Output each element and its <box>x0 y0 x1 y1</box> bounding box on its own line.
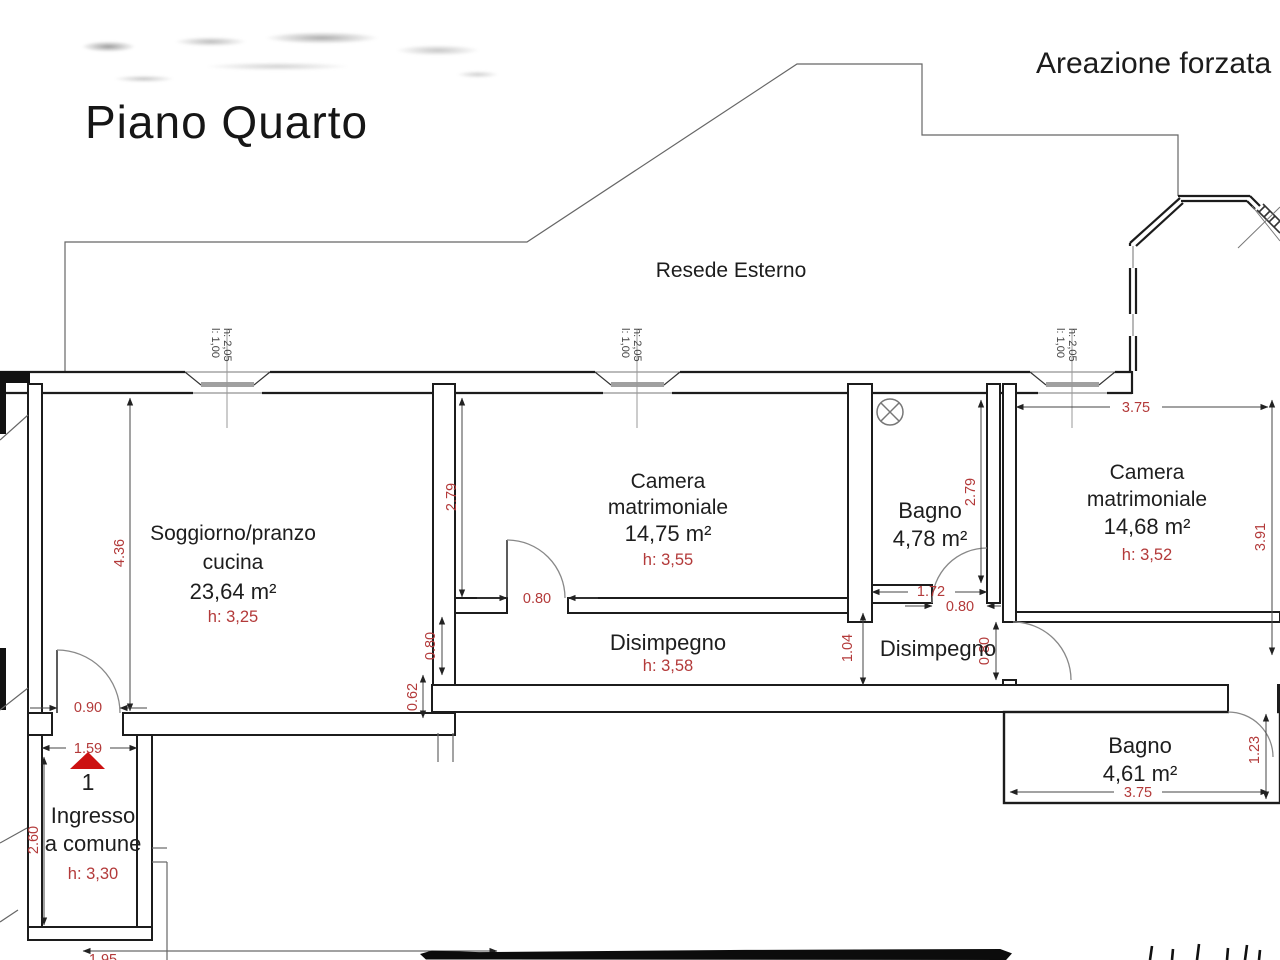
scan-artifacts <box>0 372 1260 960</box>
note-areazione-forzata: Areazione forzata <box>1036 47 1271 80</box>
window-width-tag: l: 1,00 <box>209 328 221 358</box>
camera2-bottom-wall <box>1016 612 1280 622</box>
corridor-bottom-wall <box>432 685 1228 712</box>
label-unit-number: 1 <box>82 769 95 795</box>
dim-camera1-depth: 2.79 <box>444 483 460 511</box>
label-bagno2-area: 4,61 m² <box>1103 761 1178 786</box>
window-width-tag: l: 1,00 <box>1054 328 1066 358</box>
label-camera1-2: matrimoniale <box>608 496 728 519</box>
label-soggiorno-area: 23,64 m² <box>190 579 277 604</box>
titles: Piano Quarto Areazione forzata Resede Es… <box>85 47 1271 282</box>
label-soggiorno-2: cucina <box>203 551 264 574</box>
dim-disimpegno2-width: 1.04 <box>840 634 856 662</box>
dim-soggiorno-door: 0.90 <box>74 700 102 716</box>
label-camera1-1: Camera <box>631 470 706 493</box>
window-width-tag: l: 1,00 <box>619 328 631 358</box>
window-height-tag: h: 2,05 <box>631 328 643 362</box>
dim-bagno1-depth: 2.79 <box>963 478 979 506</box>
label-resede-esterno: Resede Esterno <box>656 259 807 282</box>
dim-camera1-door: 0.80 <box>523 591 551 607</box>
dim-bottom-partial: 1.95 <box>89 952 117 960</box>
dim-camera2-width: 3.75 <box>1122 400 1150 416</box>
bottom-edge-marks <box>1150 944 1260 960</box>
label-soggiorno-1: Soggiorno/pranzo <box>150 522 316 545</box>
forced-ventilation-symbol <box>877 399 903 425</box>
disimpegno2-door-swing <box>1013 622 1071 680</box>
dim-bagno1-width: 1.72 <box>917 584 945 600</box>
room-labels: Soggiorno/pranzo cucina 23,64 m² h: 3,25… <box>45 461 1207 883</box>
dim-bagno1-door: 0.80 <box>946 599 974 615</box>
window-height-tag: h: 2,05 <box>221 328 233 362</box>
label-bagno2: Bagno <box>1108 733 1172 758</box>
label-camera2-height: h: 3,52 <box>1122 546 1172 564</box>
dim-camera2-depth: 3.91 <box>1253 523 1269 551</box>
camera1-bottom-wall <box>568 598 850 613</box>
camera1-door-swing <box>507 540 565 598</box>
page-title: Piano Quarto <box>85 96 368 148</box>
window-height-tag: h: 2,05 <box>1066 328 1078 362</box>
label-ingresso-1: Ingresso <box>51 803 135 828</box>
bagno1-left-wall <box>848 384 872 622</box>
label-soggiorno-height: h: 3,25 <box>208 608 258 626</box>
camera2-left-wall <box>1003 384 1016 622</box>
label-bagno1-area: 4,78 m² <box>893 526 968 551</box>
soggiorno-bottom-wall <box>123 713 455 735</box>
bay-window <box>1127 196 1280 371</box>
label-disimpegno1-height: h: 3,58 <box>643 657 693 675</box>
label-ingresso-2: a comune <box>45 831 142 856</box>
dim-step: 0.62 <box>405 683 421 711</box>
label-disimpegno2: Disimpegno <box>880 636 996 661</box>
dim-ingresso-height: 2.60 <box>26 826 42 854</box>
dim-bagno2-width: 3.75 <box>1124 785 1152 801</box>
dim-corridor-width: 0.80 <box>423 632 439 660</box>
floor-plan-page: h: 2,05 l: 1,00 h: 2,05 l: 1,00 h: 2,05 … <box>0 0 1280 960</box>
bagno2-door-opening <box>1229 710 1277 715</box>
dim-bagno2-depth: 1.23 <box>1247 736 1263 764</box>
soggiorno-bottom-wall <box>28 713 52 735</box>
label-camera1-height: h: 3,55 <box>643 551 693 569</box>
exterior-top-wall <box>0 371 1132 394</box>
ingresso-bottom-wall <box>28 927 152 940</box>
label-camera2-1: Camera <box>1110 461 1185 484</box>
label-camera2-area: 14,68 m² <box>1104 514 1191 539</box>
camera1-bottom-wall <box>455 598 507 613</box>
label-camera2-2: matrimoniale <box>1087 488 1207 511</box>
label-disimpegno1: Disimpegno <box>610 630 726 655</box>
label-ingresso-height: h: 3,30 <box>68 865 118 883</box>
label-bagno1: Bagno <box>898 498 962 523</box>
floor-plan-drawing: h: 2,05 l: 1,00 h: 2,05 l: 1,00 h: 2,05 … <box>0 0 1280 960</box>
bagno1-right-wall <box>987 384 1000 603</box>
dim-soggiorno-height: 4.36 <box>112 539 128 567</box>
label-camera1-area: 14,75 m² <box>625 521 712 546</box>
